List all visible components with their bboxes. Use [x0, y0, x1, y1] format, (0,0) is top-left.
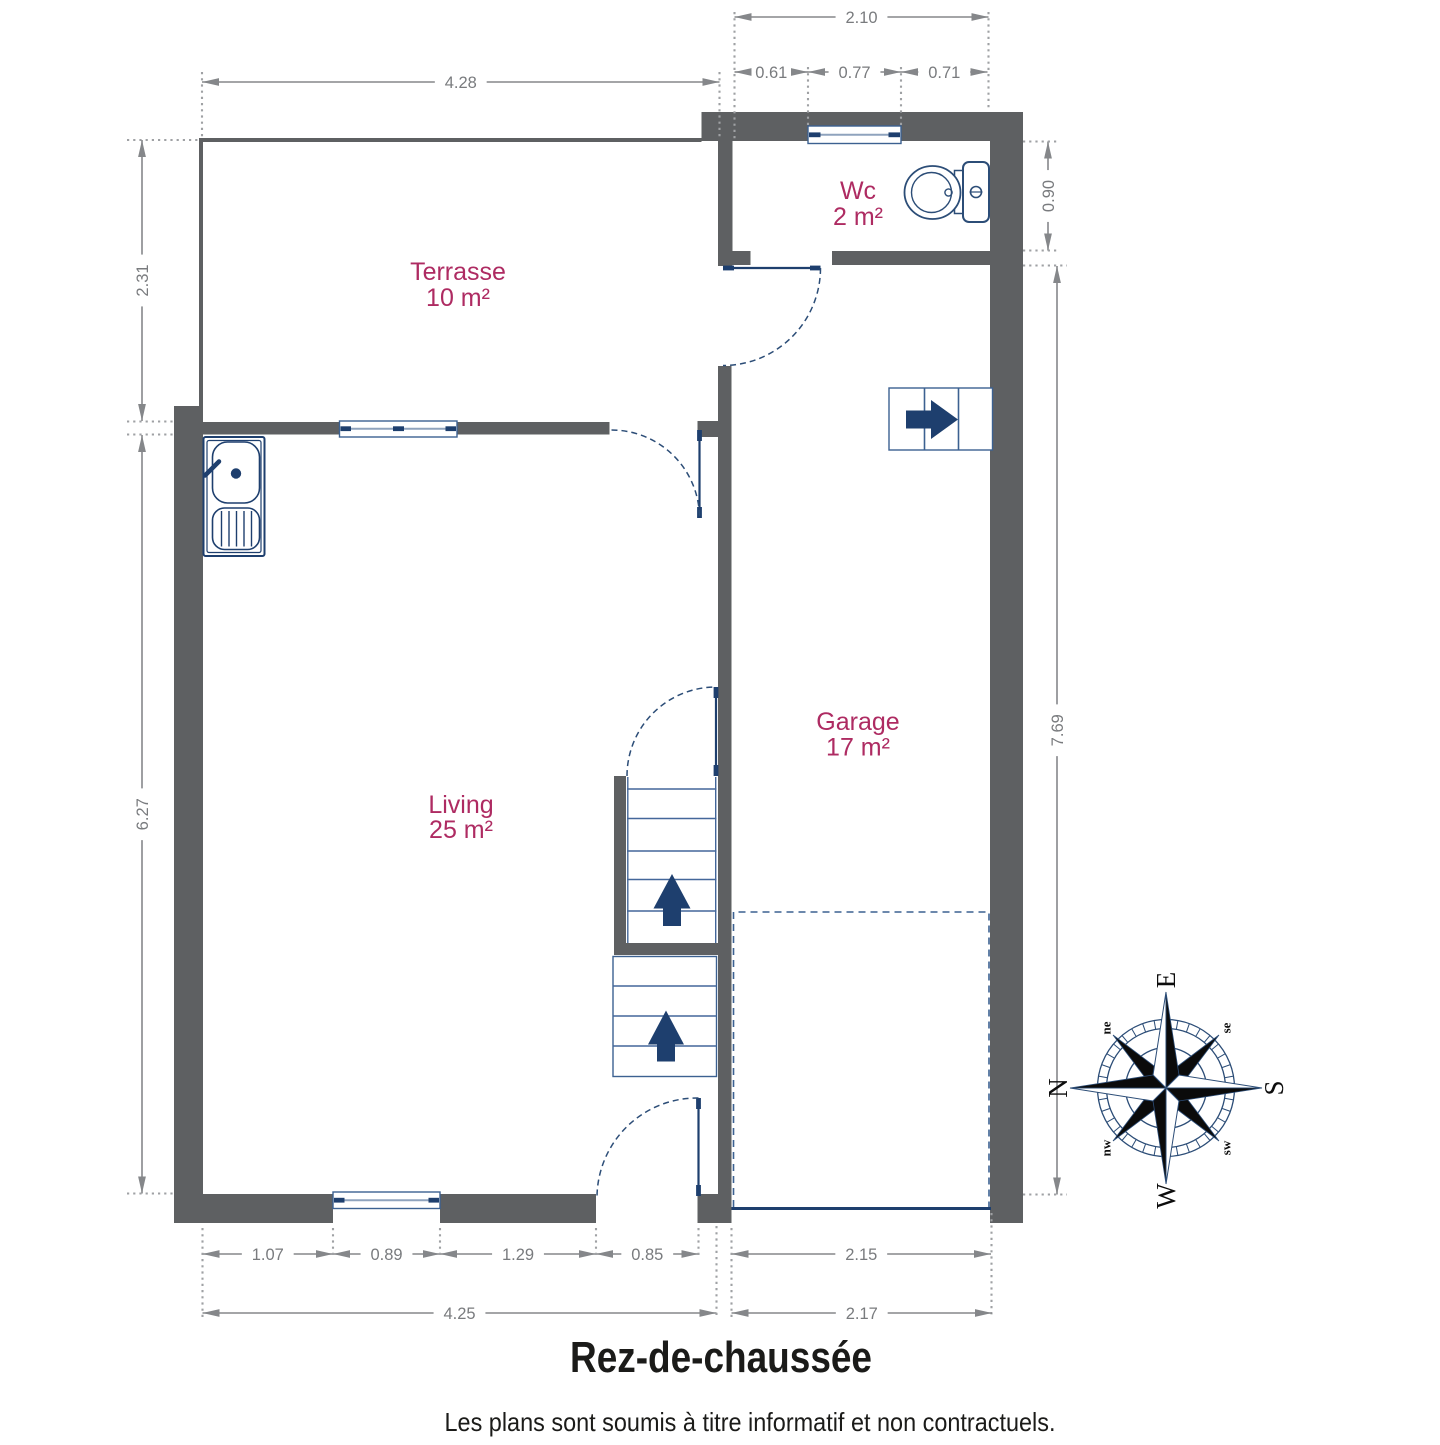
svg-text:S: S — [1259, 1080, 1289, 1095]
svg-text:2.10: 2.10 — [845, 9, 877, 27]
svg-text:0.77: 0.77 — [838, 64, 870, 82]
svg-text:Garage: Garage — [816, 708, 899, 736]
svg-text:2 m²: 2 m² — [833, 203, 883, 231]
svg-text:2.15: 2.15 — [845, 1246, 877, 1264]
svg-text:6.27: 6.27 — [134, 798, 152, 830]
svg-text:Terrasse: Terrasse — [410, 258, 506, 286]
svg-text:sw: sw — [1219, 1140, 1234, 1155]
svg-text:Living: Living — [428, 791, 493, 819]
svg-text:25 m²: 25 m² — [429, 816, 493, 844]
svg-text:ne: ne — [1099, 1021, 1114, 1034]
svg-text:0.85: 0.85 — [631, 1246, 663, 1264]
svg-text:Les plans sont soumis à titre: Les plans sont soumis à titre informatif… — [445, 1407, 1056, 1437]
svg-text:E: E — [1151, 972, 1181, 989]
svg-text:0.71: 0.71 — [928, 64, 960, 82]
svg-text:nw: nw — [1099, 1139, 1114, 1156]
svg-text:7.69: 7.69 — [1049, 714, 1067, 746]
svg-text:2.31: 2.31 — [134, 264, 152, 296]
svg-text:0.89: 0.89 — [370, 1246, 402, 1264]
svg-text:se: se — [1219, 1022, 1234, 1033]
svg-text:4.25: 4.25 — [443, 1305, 475, 1323]
svg-text:W: W — [1151, 1183, 1181, 1209]
svg-text:2.17: 2.17 — [846, 1305, 878, 1323]
svg-text:N: N — [1043, 1078, 1073, 1098]
svg-text:1.07: 1.07 — [252, 1246, 284, 1264]
svg-text:0.61: 0.61 — [755, 64, 787, 82]
svg-text:1.29: 1.29 — [502, 1246, 534, 1264]
svg-text:10 m²: 10 m² — [426, 284, 490, 312]
svg-text:4.28: 4.28 — [445, 74, 477, 92]
svg-text:Wc: Wc — [840, 177, 876, 205]
svg-text:0.90: 0.90 — [1040, 180, 1058, 212]
svg-text:17 m²: 17 m² — [826, 734, 890, 762]
svg-text:Rez-de-chaussée: Rez-de-chaussée — [570, 1333, 872, 1382]
